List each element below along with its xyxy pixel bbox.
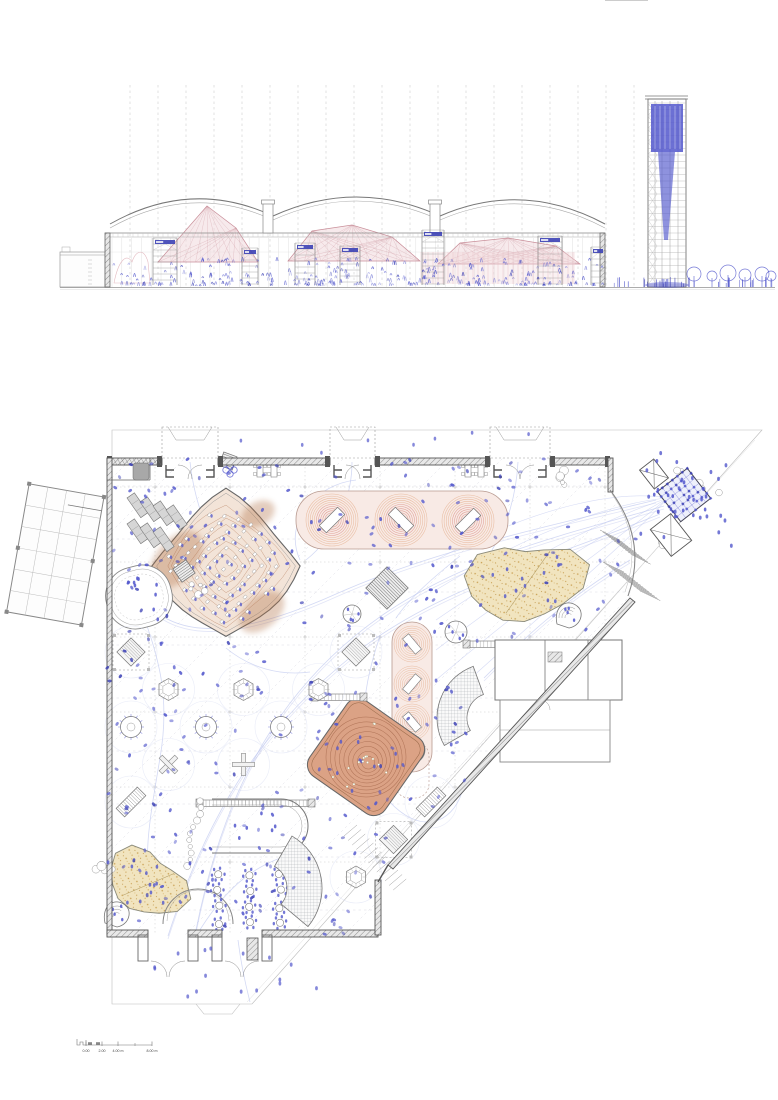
kiosk-circle bbox=[343, 605, 361, 623]
fan-room bbox=[275, 836, 323, 927]
pavilion-hex bbox=[293, 664, 345, 716]
pavilion-circle bbox=[105, 701, 157, 753]
pavilion-xsquare bbox=[105, 626, 157, 678]
stair-run bbox=[600, 530, 651, 564]
scale-label: 2.00 bbox=[99, 1049, 106, 1053]
pavilion-circle bbox=[180, 701, 232, 753]
stair-run bbox=[603, 562, 660, 601]
drawing-page: 0.00 2.00 4.00 m 8.00 m bbox=[0, 0, 778, 1100]
scale-segment bbox=[96, 1042, 100, 1045]
scale-label: 0.00 bbox=[83, 1049, 90, 1053]
entrance-vestibule-top bbox=[330, 427, 375, 479]
kiosk-circle bbox=[445, 621, 467, 643]
pavilion-xsquare bbox=[330, 626, 382, 678]
pavilion-bench bbox=[105, 776, 157, 828]
tree-row bbox=[184, 798, 204, 870]
scale-step-glyph bbox=[77, 1039, 86, 1045]
architectural-drawing-canvas: 0.00 2.00 4.00 m 8.00 m bbox=[0, 0, 778, 1100]
pavilion-circle bbox=[255, 701, 307, 753]
left-annex-structure bbox=[4, 481, 106, 627]
observation-tower bbox=[605, 0, 689, 288]
tree-cluster bbox=[556, 466, 569, 487]
splash-pool bbox=[645, 282, 689, 288]
right-wall bbox=[600, 233, 605, 287]
entrance-vestibule-top bbox=[162, 427, 218, 479]
left-wall bbox=[105, 233, 110, 287]
cafe-tables bbox=[210, 866, 288, 931]
scale-segment bbox=[88, 1042, 92, 1045]
blue-cascade-fall bbox=[658, 152, 675, 240]
building-section-view bbox=[60, 0, 776, 290]
pavilion-hex bbox=[218, 664, 270, 716]
entrance-vestibule-bottom bbox=[212, 935, 272, 977]
scale-label: 4.00 m bbox=[113, 1049, 124, 1053]
entrance-vestibule-bottom bbox=[138, 935, 198, 977]
bench-strip bbox=[196, 799, 315, 807]
pavilion-hex bbox=[143, 664, 195, 716]
scale-bar: 0.00 2.00 4.00 m 8.00 m bbox=[77, 1039, 158, 1053]
left-annex bbox=[60, 247, 105, 287]
pavilion-cross bbox=[143, 739, 195, 791]
vehicle bbox=[133, 463, 149, 480]
scale-label: 8.00 m bbox=[147, 1049, 158, 1053]
blue-cascade-top bbox=[651, 104, 683, 152]
